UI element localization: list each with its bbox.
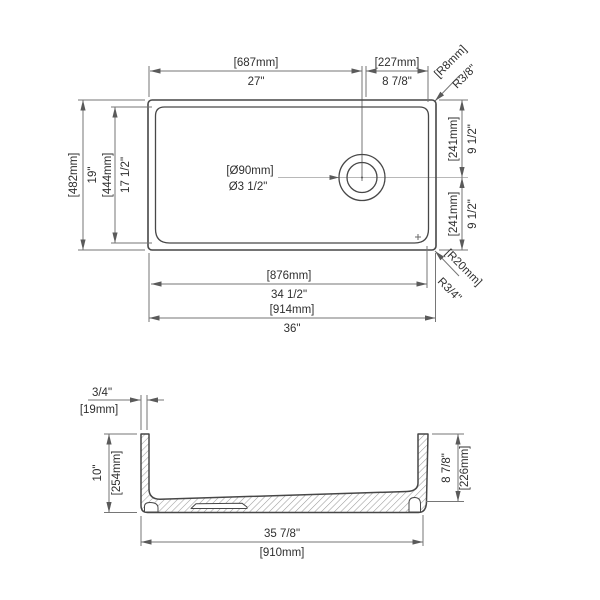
- dim-label-in: 9 1/2": [467, 199, 479, 229]
- dim-label-in: 8 7/8": [382, 76, 412, 88]
- dim-depth-left: 10" [254mm]: [92, 434, 137, 513]
- dim-label-mm: [914mm]: [270, 304, 315, 316]
- dim-label-in: 17 1/2": [120, 157, 132, 193]
- drain-leader-arrow: [330, 175, 340, 180]
- dim-label-in: 19": [87, 167, 99, 184]
- sink-spec-sheet: [687mm] 27" [227mm] 8 7/8" [R8mm] R3/8" …: [0, 0, 600, 600]
- dim-label-mm: [444mm]: [102, 153, 114, 198]
- dim-width-drain-to-right: [227mm] 8 7/8": [366, 57, 428, 102]
- dim-depth-right: 8 7/8" [226mm]: [426, 434, 471, 502]
- dim-base-width: 35 7/8" [910mm]: [141, 515, 423, 559]
- dim-drain-to-top: [241mm] 9 1/2": [439, 100, 479, 178]
- radius-label-in: R3/4": [435, 276, 464, 305]
- dim-drain-diameter: [Ø90mm] Ø3 1/2": [226, 165, 339, 193]
- dim-label-mm: [876mm]: [267, 270, 312, 282]
- drain-center-mark: [361, 177, 363, 179]
- dim-label-in: 27": [248, 76, 265, 88]
- dim-label-mm: [227mm]: [375, 57, 420, 69]
- dim-wall-thickness: 3/4" [19mm]: [80, 387, 164, 430]
- leader-corner-radius-top-right: [R8mm] R3/8": [432, 43, 479, 101]
- right-foot-groove: [409, 498, 421, 513]
- radius-label-in: R3/8": [451, 63, 480, 92]
- dim-label-mm: [254mm]: [111, 451, 123, 496]
- dim-bowl-depth: [444mm] 17 1/2": [102, 107, 152, 243]
- sink-dimension-drawing: [687mm] 27" [227mm] 8 7/8" [R8mm] R3/8" …: [0, 0, 600, 600]
- dim-label-in: 10": [92, 465, 104, 482]
- section-body: [141, 434, 428, 513]
- top-view: [687mm] 27" [227mm] 8 7/8" [R8mm] R3/8" …: [68, 43, 484, 335]
- sink-rim-outline: [148, 100, 436, 250]
- dim-label-mm: [226mm]: [459, 446, 471, 491]
- dim-label-mm: [241mm]: [448, 192, 460, 237]
- dim-label-mm: [687mm]: [234, 57, 279, 69]
- left-foot-groove: [145, 503, 159, 513]
- dim-width-left-to-drain: [687mm] 27": [149, 57, 362, 97]
- dim-label-mm: [910mm]: [260, 547, 305, 559]
- dim-label-in: 35 7/8": [264, 528, 300, 540]
- dim-label-in: 9 1/2": [467, 124, 479, 154]
- dim-label-mm: [482mm]: [68, 153, 80, 198]
- dim-label-in: 8 7/8": [441, 453, 453, 483]
- section-view: 3/4" [19mm] 10" [254mm] 8 7/8" [226mm] 3…: [80, 387, 471, 559]
- dim-label-mm: [19mm]: [80, 404, 118, 416]
- corner-radius-center-mark: [415, 234, 421, 240]
- dim-label-in: Ø3 1/2": [229, 181, 268, 193]
- dim-label-in: 3/4": [92, 387, 112, 399]
- dim-label-in: 34 1/2": [271, 289, 307, 301]
- leader-corner-radius-bottom-right: [R20mm] R3/4": [435, 247, 484, 304]
- dim-drain-to-bottom: [241mm] 9 1/2": [439, 178, 479, 251]
- dim-label-mm: [241mm]: [448, 117, 460, 162]
- drain-boss-recess: [191, 503, 247, 508]
- dim-label-in: 36": [284, 323, 301, 335]
- sink-bowl-outline: [156, 107, 429, 243]
- dim-label-mm: [Ø90mm]: [226, 165, 273, 177]
